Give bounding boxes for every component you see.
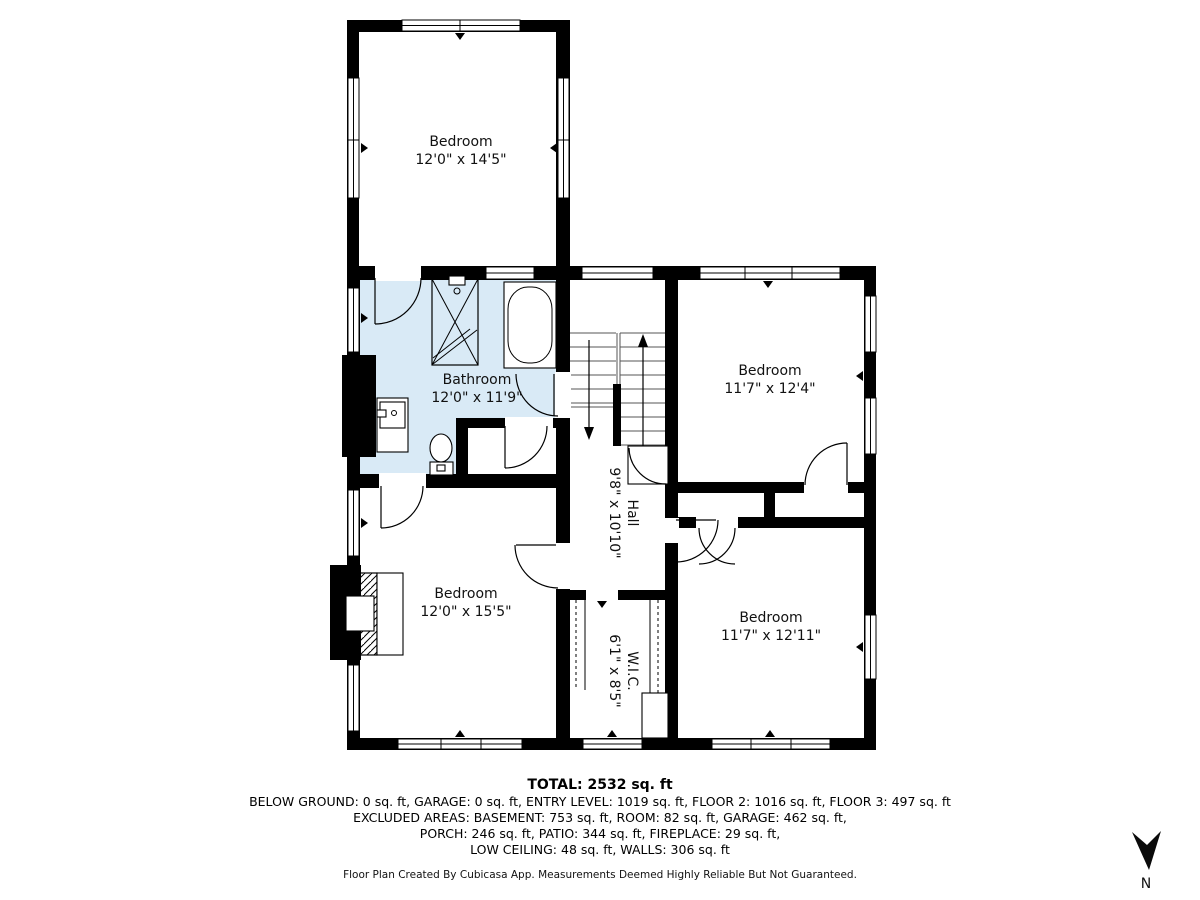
svg-text:9'8" x 10'10": 9'8" x 10'10" — [606, 467, 622, 558]
floor-plan-page: Bedroom 12'0" x 14'5" Bathroom 12'0" x 1… — [0, 0, 1200, 900]
window — [582, 267, 653, 279]
window — [348, 665, 359, 731]
window — [558, 78, 569, 198]
window — [865, 398, 876, 454]
total-area-text: TOTAL: 2532 sq. ft — [0, 777, 1200, 794]
window — [712, 739, 830, 749]
summary-line: PORCH: 246 sq. ft, PATIO: 344 sq. ft, FI… — [0, 826, 1200, 842]
room-label-bedroom-bottom-right: Bedroom 11'7" x 12'11" — [721, 610, 821, 644]
svg-text:Bedroom: Bedroom — [429, 134, 492, 150]
svg-text:Hall: Hall — [624, 500, 640, 527]
closet-door-arcs — [699, 528, 735, 564]
svg-text:Bedroom: Bedroom — [434, 586, 497, 602]
svg-text:12'0" x 14'5": 12'0" x 14'5" — [415, 152, 506, 168]
svg-text:12'0" x 11'9": 12'0" x 11'9" — [431, 390, 522, 406]
window — [865, 615, 876, 679]
svg-text:W.I.C.: W.I.C. — [624, 651, 640, 691]
wic-dresser — [642, 693, 668, 738]
door-arc — [505, 426, 547, 468]
sink-vanity — [377, 398, 408, 452]
door-arc — [381, 486, 423, 528]
summary-line: EXCLUDED AREAS: BASEMENT: 753 sq. ft, RO… — [0, 810, 1200, 826]
room-label-bedroom-left: Bedroom 12'0" x 15'5" — [420, 586, 511, 620]
window — [348, 288, 359, 352]
window — [348, 78, 359, 198]
svg-text:6'1" x 8'5": 6'1" x 8'5" — [606, 634, 622, 707]
window — [486, 267, 534, 279]
window — [398, 739, 522, 749]
summary-line: LOW CEILING: 48 sq. ft, WALLS: 306 sq. f… — [0, 842, 1200, 858]
room-label-bedroom-right: Bedroom 11'7" x 12'4" — [724, 363, 815, 397]
understairs-door — [628, 446, 668, 484]
svg-text:11'7" x 12'4": 11'7" x 12'4" — [724, 381, 815, 397]
chimney-mass — [342, 355, 376, 457]
svg-text:Bedroom: Bedroom — [739, 610, 802, 626]
toilet — [430, 434, 453, 475]
window — [402, 20, 520, 31]
floor-plan-drawing: Bedroom 12'0" x 14'5" Bathroom 12'0" x 1… — [0, 0, 1200, 900]
room-label-bedroom-top: Bedroom 12'0" x 14'5" — [415, 134, 506, 168]
area-summary: TOTAL: 2532 sq. ft BELOW GROUND: 0 sq. f… — [0, 777, 1200, 881]
bathtub — [504, 282, 556, 368]
room-label-wic: W.I.C. 6'1" x 8'5" — [606, 634, 640, 707]
svg-text:12'0" x 15'5": 12'0" x 15'5" — [420, 604, 511, 620]
fireplace — [333, 573, 403, 655]
door-arc — [515, 545, 558, 588]
svg-text:11'7" x 12'11": 11'7" x 12'11" — [721, 628, 821, 644]
window — [700, 267, 840, 279]
svg-text:Bathroom: Bathroom — [443, 372, 512, 388]
disclaimer-text: Floor Plan Created By Cubicasa App. Meas… — [0, 869, 1200, 881]
summary-line: BELOW GROUND: 0 sq. ft, GARAGE: 0 sq. ft… — [0, 794, 1200, 810]
svg-text:Bedroom: Bedroom — [738, 363, 801, 379]
door-arc — [805, 443, 847, 485]
window — [583, 739, 642, 749]
window — [865, 296, 876, 352]
window — [348, 490, 359, 556]
